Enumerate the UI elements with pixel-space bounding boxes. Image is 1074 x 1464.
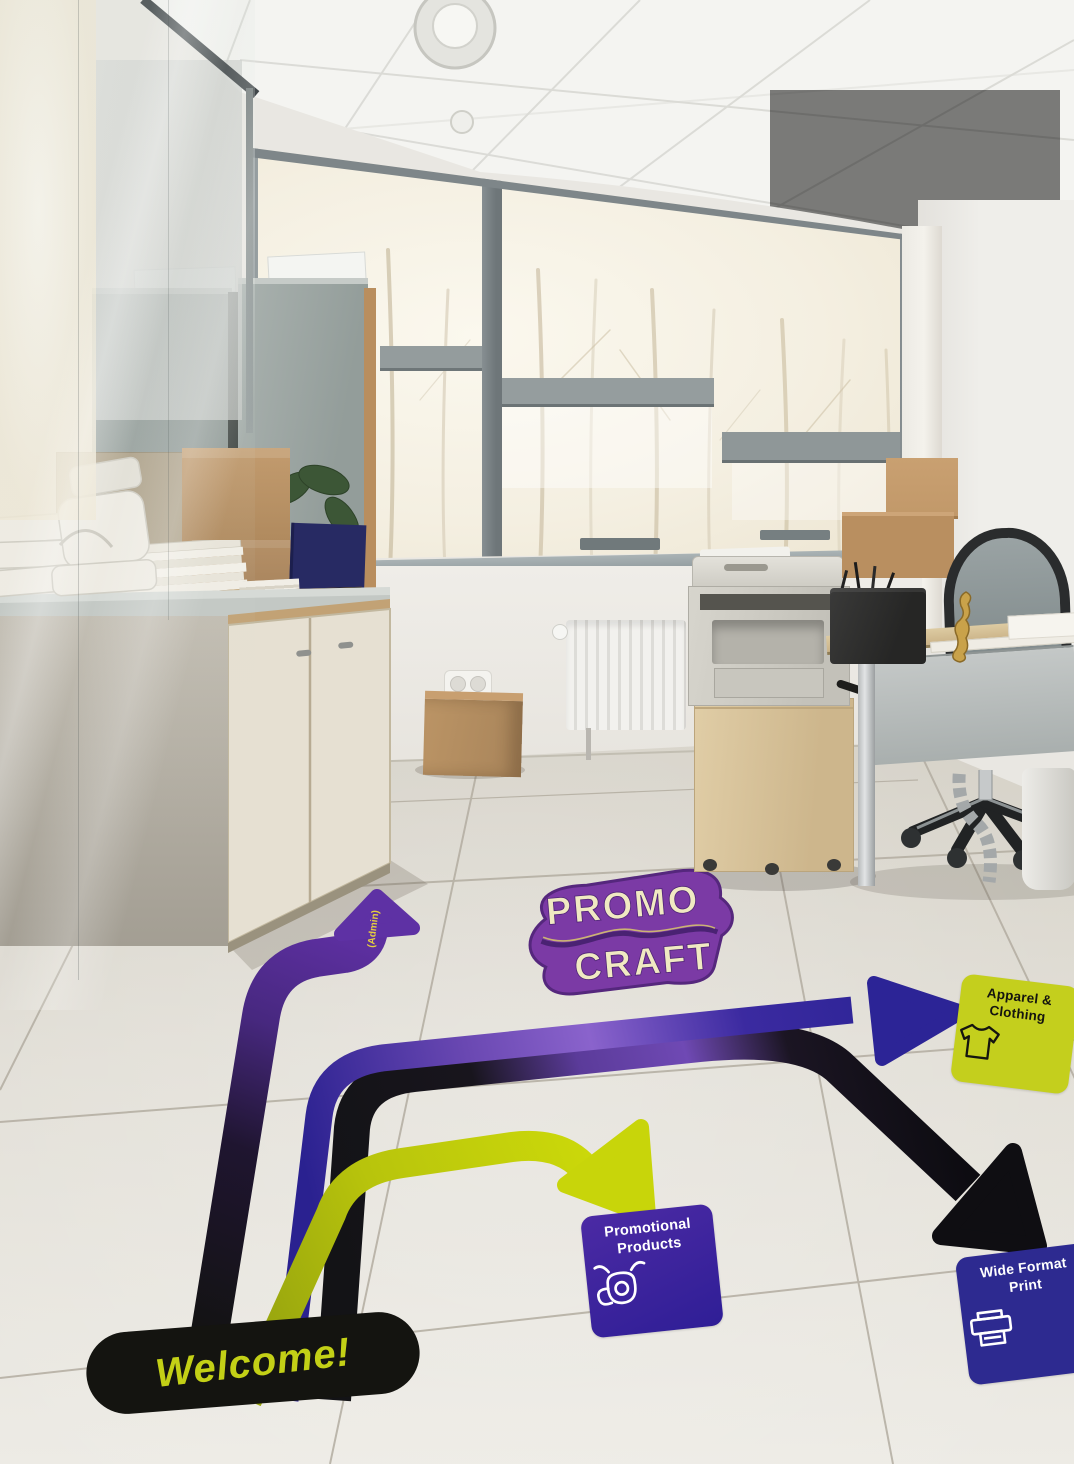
- paper-on-desk: [1007, 612, 1074, 640]
- caster: [765, 863, 779, 875]
- promocraft-floor-logo: PROMO CRAFT: [508, 862, 743, 1001]
- promotional-products-sign: Promotional Products: [580, 1203, 724, 1338]
- wide-format-print-sign: Wide Format Print: [955, 1242, 1074, 1385]
- printer-output-tray: [712, 620, 824, 664]
- radiator-valve: [552, 624, 568, 640]
- desk-leg: [858, 664, 875, 886]
- welcome-label: Welcome!: [153, 1330, 353, 1397]
- printer-control-strip: [700, 594, 838, 610]
- caster: [703, 859, 717, 871]
- arrow-right-blue-icon: [874, 983, 962, 1059]
- printer-handle: [724, 564, 768, 571]
- printer-paper-tray: [714, 668, 824, 698]
- radiator: [566, 620, 686, 730]
- glass-partition-mullion: [246, 88, 253, 433]
- wide-line2: Print: [1008, 1275, 1043, 1295]
- left-outdoor-pane: [0, 0, 96, 520]
- arrow-down-yellow-icon: [565, 1127, 648, 1216]
- printer-icon: [960, 1297, 1021, 1351]
- caster: [827, 859, 841, 871]
- box-on-sill-top: [886, 458, 958, 519]
- office-printer: [686, 556, 852, 706]
- lower-cabinet-behind-glass: [0, 616, 228, 946]
- printer-adf-lid: [692, 556, 844, 588]
- white-pedestal: [1022, 768, 1074, 890]
- desk-organizer: [830, 588, 926, 664]
- cardboard-box-floor: [423, 691, 523, 778]
- glass-seam: [168, 0, 169, 620]
- apparel-clothing-sign: Apparel & Clothing: [950, 973, 1074, 1095]
- box-on-sill-bottom: [842, 512, 954, 578]
- archive-box-top: [182, 448, 290, 546]
- radiator-pipe: [586, 728, 591, 760]
- office-scene: (Admin) PROMO CRAFT Apparel & Clothing P…: [0, 0, 1074, 1464]
- gold-statuette: [944, 588, 978, 664]
- glass-seam: [78, 0, 79, 980]
- glass-reflection-panel: [96, 60, 242, 420]
- printer-cabinet: [694, 698, 854, 872]
- tshirt-icon: [952, 1018, 1005, 1066]
- mug-icon: [585, 1257, 652, 1315]
